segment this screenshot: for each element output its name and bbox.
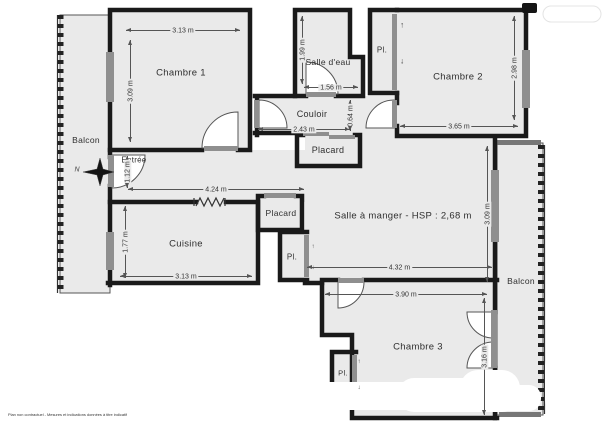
dim-couloir-height: 0.64 m (350, 100, 351, 131)
room-label-salle-a-manger: Salle à manger - HSP : 2,68 m (334, 211, 471, 222)
slide-arrow-up-icon: ↑ (400, 21, 404, 30)
closet-label-pl-chambre-2: Pl. (377, 46, 387, 55)
closet-label-placard-cuisine: Placard (266, 208, 297, 218)
floor-plan: Chambre 1 Salle d'eau Chambre 2 Couloir … (0, 0, 609, 430)
closet-label-pl-salle-a-manger: Pl. (287, 253, 297, 262)
logo-mark (522, 3, 537, 13)
slide-arrow-up-icon: ↑ (358, 359, 361, 365)
dim-chambre-3-height: 3.16 m (484, 298, 485, 415)
room-label-couloir: Couloir (297, 109, 328, 119)
dim-salle-d-eau-width: 1.56 m (304, 87, 358, 88)
dim-chambre-1-height: 3.09 m (130, 40, 131, 142)
dim-couloir-width: 2.43 m (258, 129, 350, 130)
balcony-left-fill (60, 15, 110, 293)
room-label-chambre-1: Chambre 1 (156, 68, 206, 79)
slide-arrow-down-icon: ↓ (358, 385, 361, 391)
compass-north-label: N (74, 167, 79, 174)
dim-degagement-width: 4.24 m (128, 189, 304, 190)
room-label-chambre-2: Chambre 2 (433, 72, 483, 83)
room-label-balcon-gauche: Balcon (72, 135, 100, 145)
closet-label-placard-couloir: Placard (312, 145, 345, 155)
dim-chambre-3-width: 3.90 m (325, 294, 487, 295)
dim-chambre-2-width: 3.65 m (400, 126, 518, 127)
dim-entree-height: 1.12 m (127, 156, 128, 188)
dim-cuisine-width: 3.13 m (120, 276, 252, 277)
dim-salle-a-manger-width: 4.32 m (307, 267, 492, 268)
dim-salle-d-eau-height: 1.99 m (302, 16, 303, 84)
logo-ghost (543, 6, 601, 22)
slide-arrow-up-icon: ↑ (312, 244, 315, 250)
room-label-balcon-droit: Balcon (507, 276, 535, 286)
closet-label-pl-chambre-3: Pl. (338, 369, 348, 378)
dim-cuisine-height: 1.77 m (125, 206, 126, 278)
dim-salle-a-manger-height: 3.09 m (487, 146, 488, 282)
slide-arrow-down-icon: ↓ (400, 57, 404, 66)
room-label-cuisine: Cuisine (169, 239, 203, 250)
room-label-salle-d-eau: Salle d'eau (305, 57, 350, 67)
room-label-chambre-3: Chambre 3 (393, 342, 443, 353)
disclaimer-text: Plan non contractuel - Mesures et indica… (8, 413, 127, 418)
dim-chambre-1-width: 3.13 m (126, 30, 240, 31)
dim-chambre-2-height: 2.98 m (514, 16, 515, 120)
